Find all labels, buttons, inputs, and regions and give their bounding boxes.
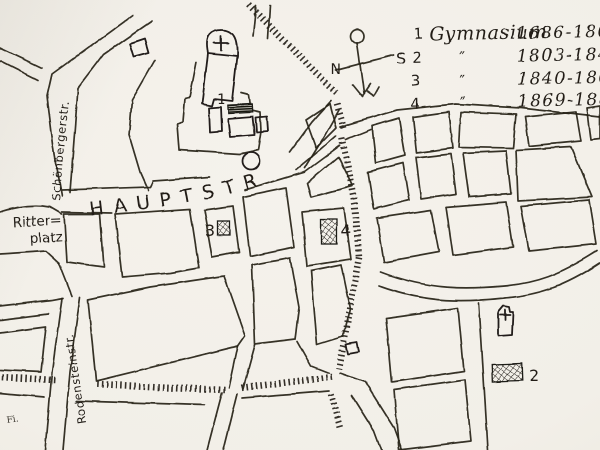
wall-tower bbox=[346, 342, 359, 354]
compass-arrow-icon bbox=[353, 84, 370, 96]
legend-years-1: 1686-1803 bbox=[516, 21, 600, 43]
schoenbergerstrasse-label: Schönbergerstr. bbox=[49, 100, 72, 201]
site-4-marker bbox=[321, 219, 337, 244]
site-2-number: 2 bbox=[529, 366, 539, 385]
legend-years-3: 1840-1869 bbox=[517, 67, 600, 89]
street-network bbox=[0, 6, 600, 450]
church-cross-icon bbox=[214, 36, 228, 50]
gymnasium-site-markers bbox=[217, 103, 522, 381]
legend-years-4: 1869-1882 bbox=[518, 89, 600, 111]
compass-s-label: S bbox=[396, 49, 406, 68]
compass-rose bbox=[336, 29, 394, 96]
hand-drawn-town-map: 1 Gymnasium 1686-1803 2 ″ 1803-1840 3 ″ … bbox=[0, 0, 600, 450]
hauptstrasse-label: HAUPTSTR bbox=[88, 166, 269, 220]
ritterplatz-label-line2: platz bbox=[29, 229, 63, 247]
site-2-marker bbox=[492, 363, 523, 381]
legend-num-1: 1 bbox=[414, 25, 424, 43]
site-1-marker bbox=[228, 103, 252, 113]
market-fountain bbox=[243, 153, 260, 170]
legend-ditto-3: ″ bbox=[459, 72, 465, 90]
legend-num-3: 3 bbox=[411, 72, 421, 90]
town-map-svg: 1 Gymnasium 1686-1803 2 ″ 1803-1840 3 ″ … bbox=[0, 0, 600, 450]
site-3-marker bbox=[217, 221, 230, 235]
legend-ditto-4: ″ bbox=[460, 94, 466, 112]
legend: 1 Gymnasium 1686-1803 2 ″ 1803-1840 3 ″ … bbox=[409, 19, 600, 113]
chapel-cross-icon bbox=[500, 310, 510, 320]
chapel-building bbox=[498, 306, 513, 336]
legend-years-2: 1803-1840 bbox=[517, 44, 600, 66]
site-3-number: 3 bbox=[205, 221, 215, 240]
site-4-number: 4 bbox=[341, 221, 351, 240]
legend-ditto-2: ″ bbox=[459, 49, 465, 67]
compass-n-label: N bbox=[331, 62, 341, 78]
artist-signature: Fi. bbox=[6, 414, 19, 426]
site-1-number: 1 bbox=[217, 92, 226, 108]
legend-num-4: 4 bbox=[410, 95, 420, 113]
legend-num-2: 2 bbox=[412, 49, 422, 67]
ritterplatz-label-line1: Ritter= bbox=[12, 212, 62, 231]
